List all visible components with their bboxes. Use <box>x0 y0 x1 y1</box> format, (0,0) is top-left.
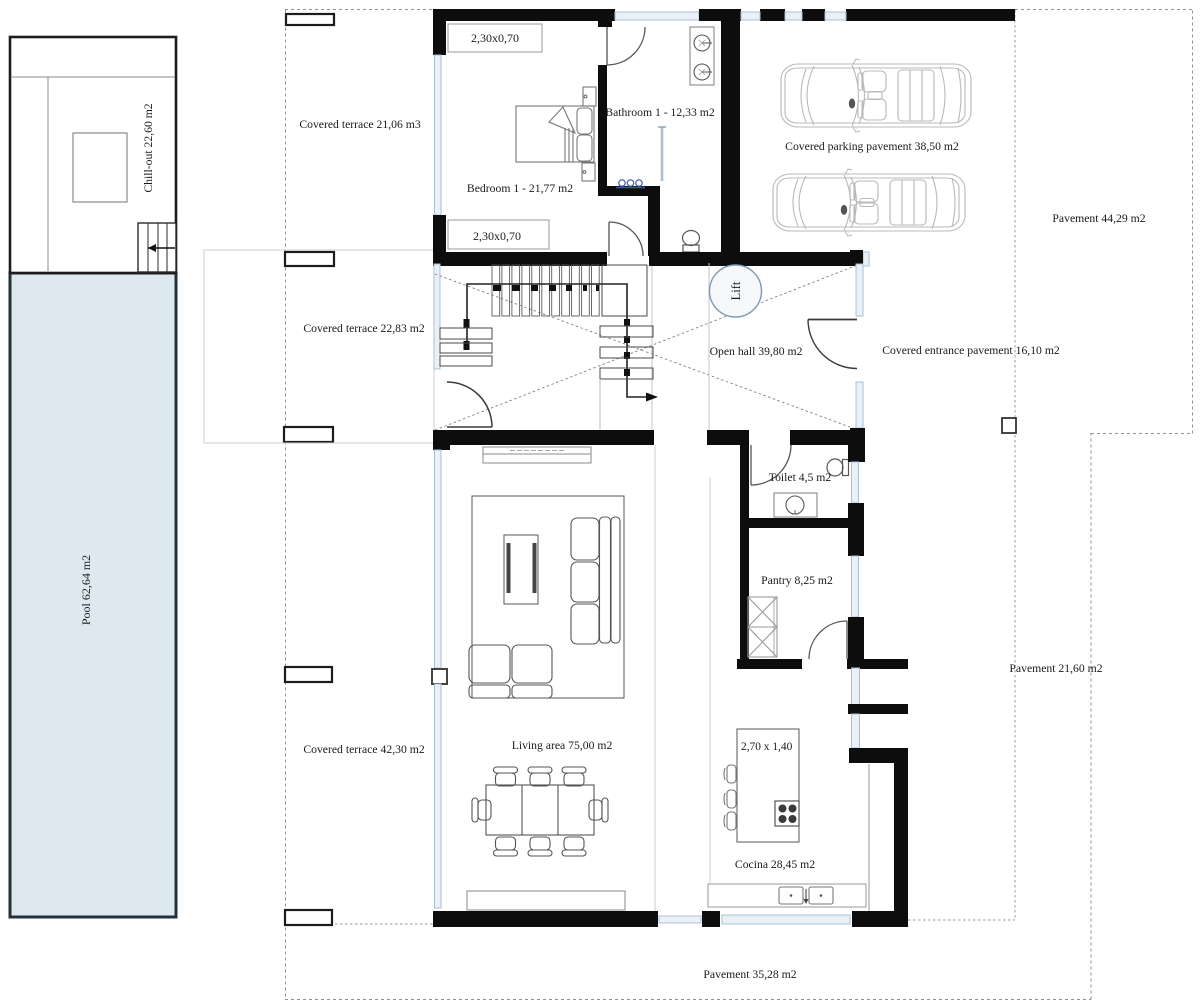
svg-text:Chill-out 22,60 m2: Chill-out 22,60 m2 <box>142 103 155 192</box>
svg-text:Open hall 39,80 m2: Open hall 39,80 m2 <box>710 345 803 358</box>
svg-text:Bathroom 1 - 12,33 m2: Bathroom 1 - 12,33 m2 <box>605 106 715 119</box>
svg-text:2,70 x 1,40: 2,70 x 1,40 <box>741 741 793 753</box>
svg-text:Pavement 35,28 m2: Pavement 35,28 m2 <box>703 968 796 981</box>
svg-text:Cocina 28,45 m2: Cocina 28,45 m2 <box>735 858 815 871</box>
svg-text:Covered terrace 42,30 m2: Covered terrace 42,30 m2 <box>303 743 425 756</box>
svg-text:2,30x0,70: 2,30x0,70 <box>471 31 519 45</box>
svg-text:Bedroom 1 - 21,77 m2: Bedroom 1 - 21,77 m2 <box>467 182 573 195</box>
svg-text:Covered terrace 22,83 m2: Covered terrace 22,83 m2 <box>303 322 425 335</box>
svg-text:Pavement 21,60 m2: Pavement 21,60 m2 <box>1009 662 1102 675</box>
svg-text:Toilet 4,5 m2: Toilet 4,5 m2 <box>769 471 832 484</box>
svg-text:Pavement 44,29 m2: Pavement 44,29 m2 <box>1052 212 1145 225</box>
svg-text:2,30x0,70: 2,30x0,70 <box>473 229 521 243</box>
svg-text:Pantry 8,25 m2: Pantry 8,25 m2 <box>761 574 833 587</box>
svg-text:Lift: Lift <box>729 281 743 300</box>
svg-text:Covered parking pavement 38,50: Covered parking pavement 38,50 m2 <box>785 140 959 153</box>
svg-text:Covered entrance pavement 16,1: Covered entrance pavement 16,10 m2 <box>882 344 1060 357</box>
svg-text:Living area 75,00 m2: Living area 75,00 m2 <box>512 739 613 752</box>
svg-text:Pool 62,64 m2: Pool 62,64 m2 <box>79 555 93 625</box>
svg-text:Covered terrace 21,06 m3: Covered terrace 21,06 m3 <box>299 118 421 131</box>
